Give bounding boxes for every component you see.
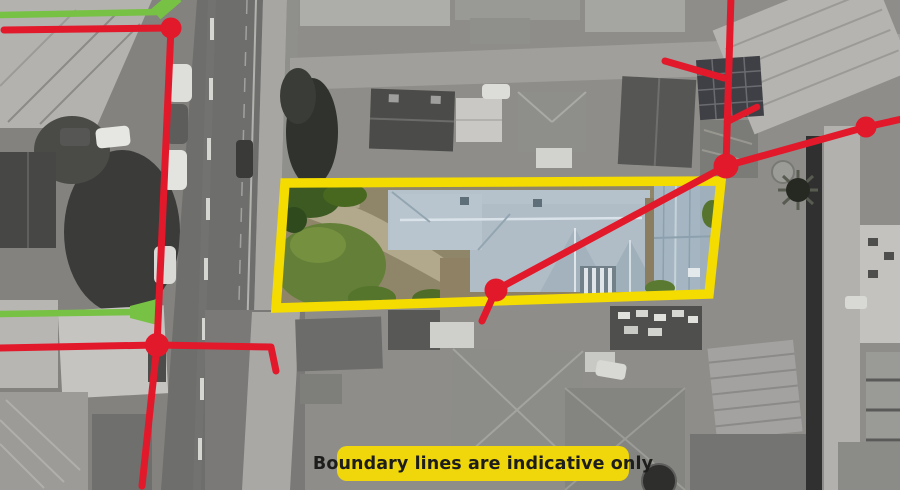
disclaimer-banner: Boundary lines are indicative only [337,446,629,481]
aerial-scene [0,0,900,490]
red-line-left-mid [0,345,157,348]
vertex-dot-parcel-front [485,279,508,302]
green-line-left [0,312,136,314]
vertex-dot-top-left [161,18,182,39]
vertex-dot-left [145,333,169,357]
vertex-dot-right [714,154,739,179]
vertex-dot-east [856,117,877,138]
disclaimer-text: Boundary lines are indicative only [313,454,653,474]
green-line-top [0,12,160,15]
property-aerial-map: Boundary lines are indicative only [0,0,900,490]
red-line-top-left [4,28,171,30]
